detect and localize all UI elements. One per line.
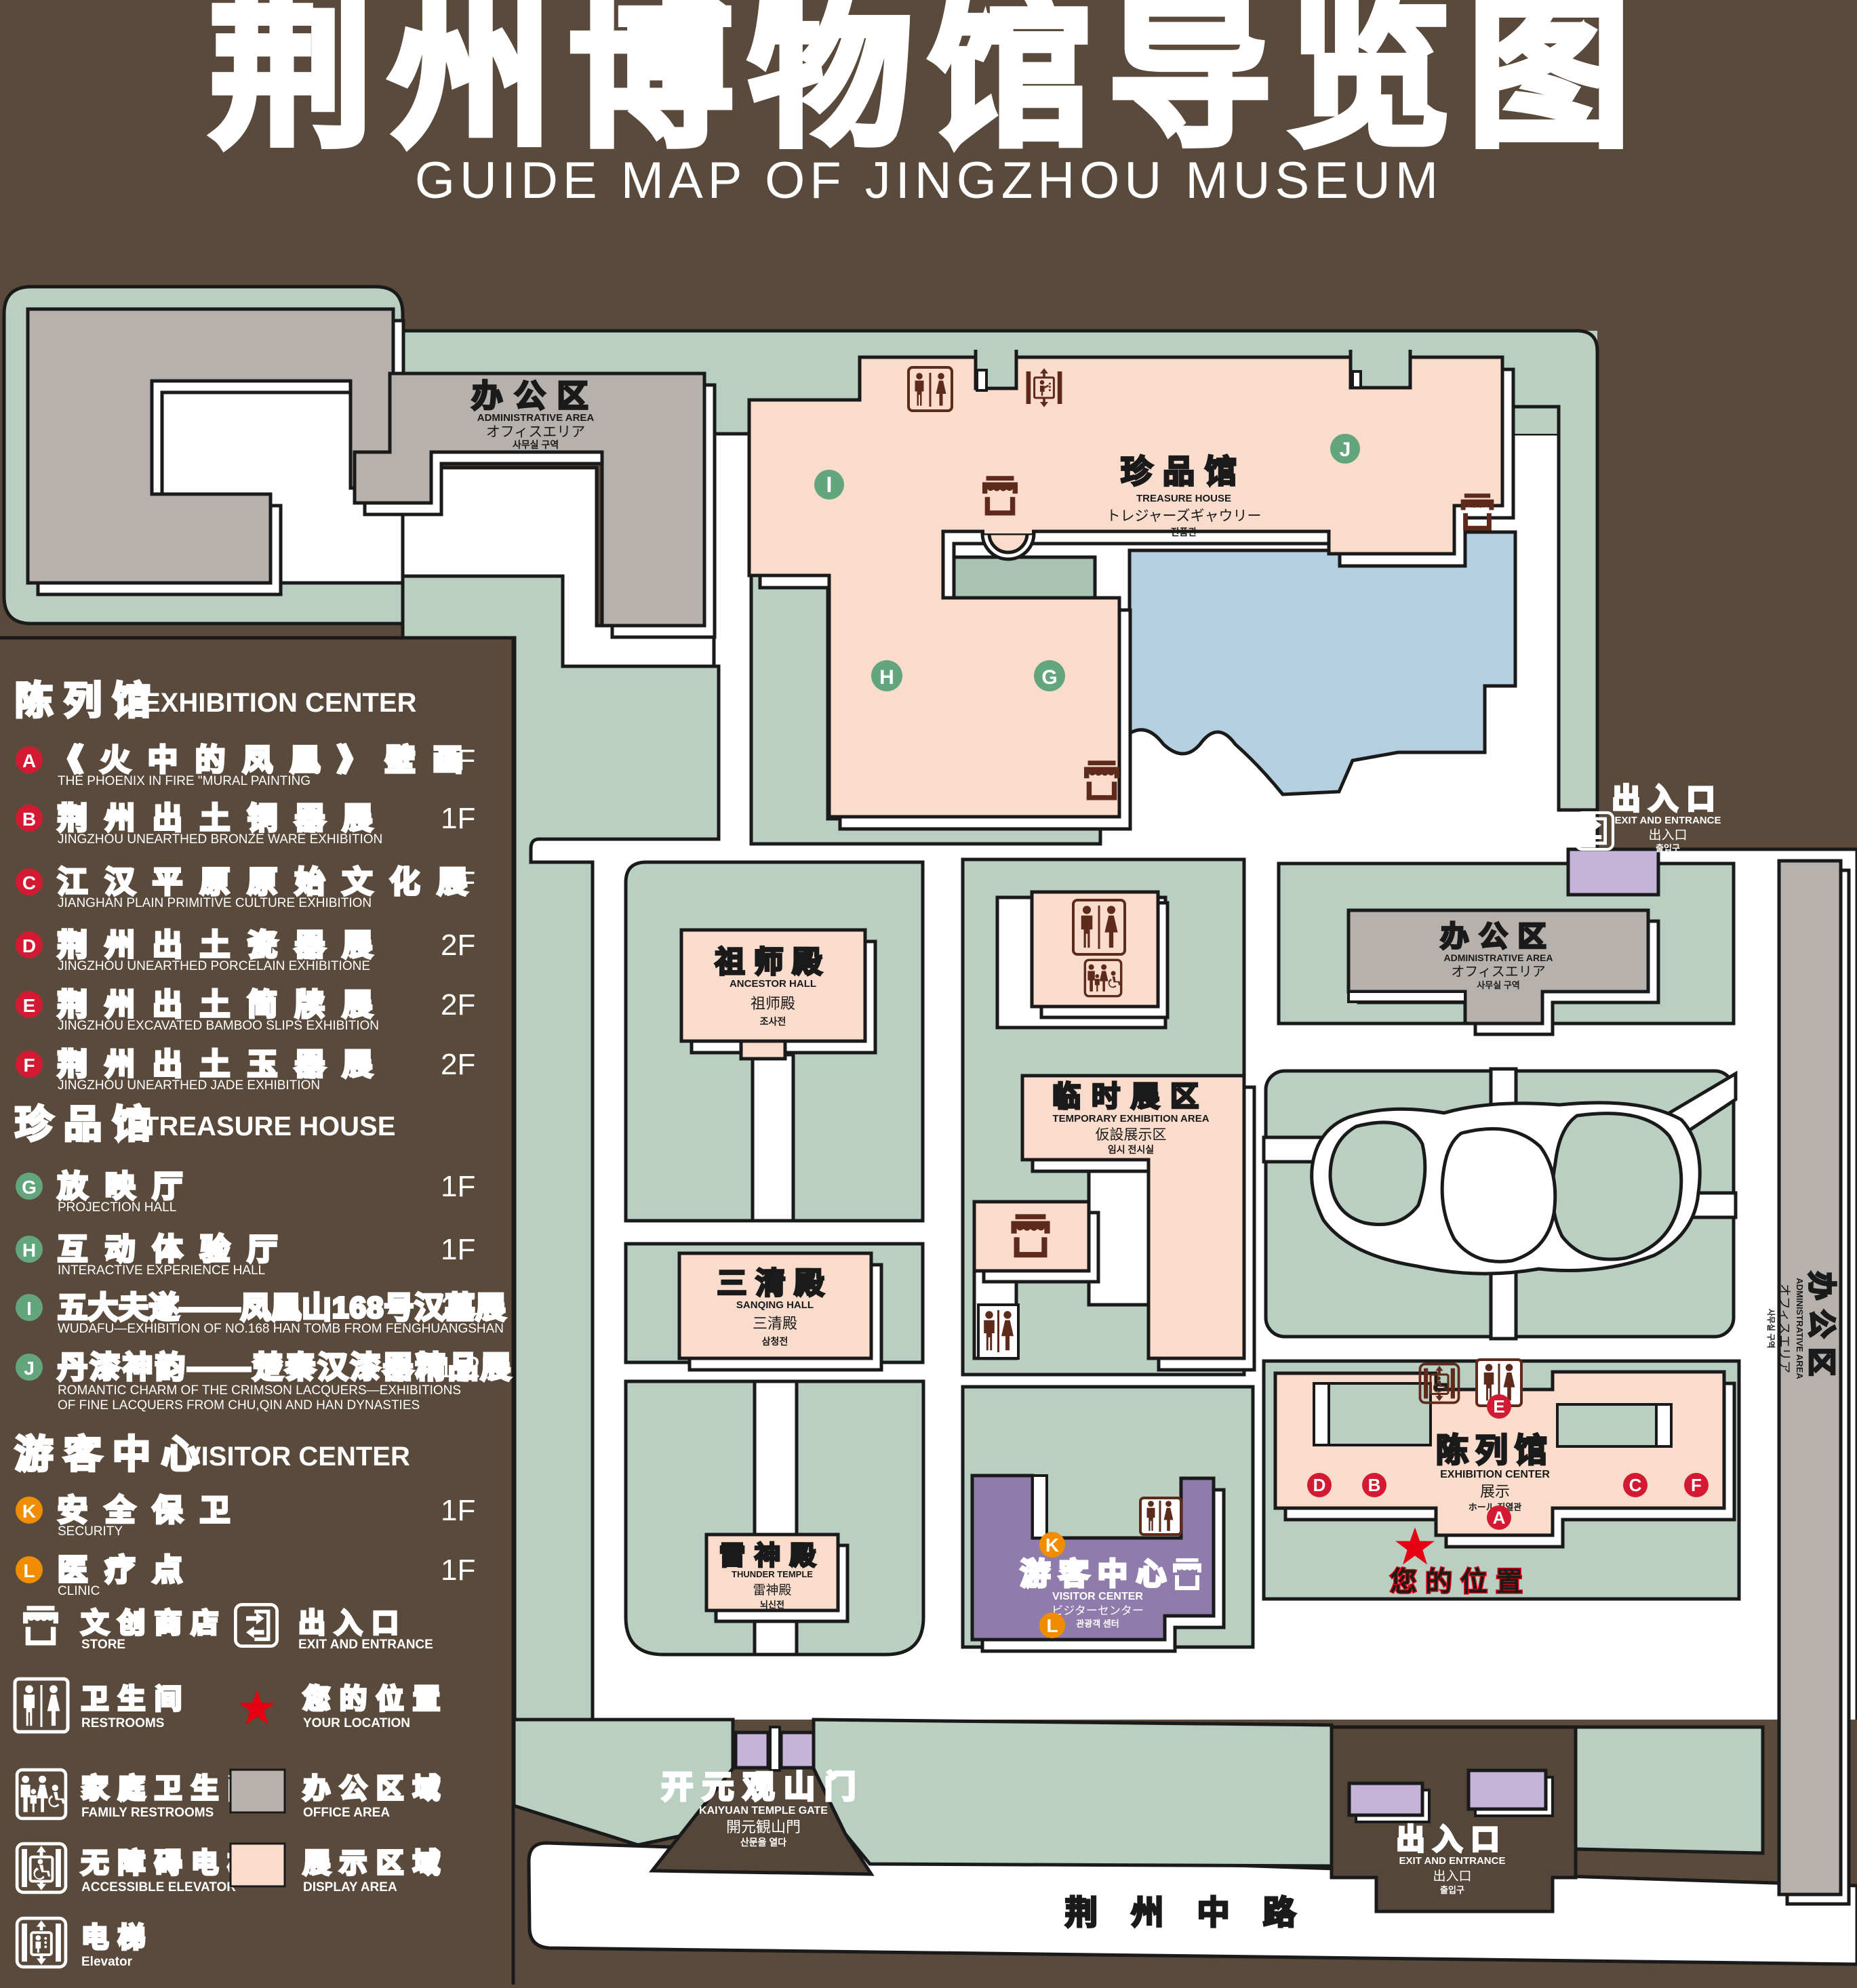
svg-text:三清殿: 三清殿	[753, 1315, 797, 1332]
svg-text:荆 州 中 路: 荆 州 中 路	[1065, 1895, 1308, 1931]
svg-text:1F: 1F	[441, 1554, 475, 1587]
svg-text:TREASURE HOUSE: TREASURE HOUSE	[1136, 493, 1231, 504]
svg-text:办公区: 办公区	[1440, 920, 1556, 952]
svg-text:电梯: 电梯	[81, 1923, 155, 1953]
svg-text:ビジターセンター: ビジターセンター	[1052, 1604, 1144, 1617]
svg-text:江汉平原原始文化展: 江汉平原原始文化展	[58, 866, 485, 899]
svg-text:オフィスエリア: オフィスエリア	[1777, 1284, 1791, 1374]
svg-text:사무실 구역: 사무실 구역	[1766, 1309, 1776, 1349]
svg-text:RESTROOMS: RESTROOMS	[81, 1716, 164, 1730]
svg-text:TEMPORARY EXHIBITION AREA: TEMPORARY EXHIBITION AREA	[1052, 1113, 1209, 1124]
svg-text:陈列馆: 陈列馆	[1436, 1433, 1554, 1469]
svg-text:EXIT AND ENTRANCE: EXIT AND ENTRANCE	[298, 1638, 433, 1652]
svg-text:トレジャーズギャウリー: トレジャーズギャウリー	[1106, 508, 1262, 524]
svg-text:荆州出土玉器展: 荆州出土玉器展	[58, 1048, 390, 1081]
svg-text:2F: 2F	[441, 1048, 475, 1081]
svg-text:ROMANTIC CHARM OF THE CRIMSON: ROMANTIC CHARM OF THE CRIMSON LACQUERS—E…	[58, 1383, 461, 1398]
svg-text:뇌신전: 뇌신전	[760, 1600, 784, 1610]
svg-text:游客中心: 游客中心	[15, 1433, 210, 1476]
svg-text:2F: 2F	[441, 929, 475, 962]
svg-text:ADMINISTRATIVE AREA: ADMINISTRATIVE AREA	[477, 412, 595, 424]
svg-text:ANCESTOR HALL: ANCESTOR HALL	[730, 978, 816, 990]
svg-text:FAMILY RESTROOMS: FAMILY RESTROOMS	[81, 1806, 214, 1820]
svg-text:雷神殿: 雷神殿	[753, 1583, 791, 1598]
svg-text:EXHIBITION CENTER: EXHIBITION CENTER	[142, 688, 417, 718]
svg-text:《火中的凤凰》壁画: 《火中的凤凰》壁画	[53, 744, 480, 777]
svg-text:荆州博物馆导览图: 荆州博物馆导览图	[210, 0, 1648, 165]
svg-text:办公区: 办公区	[472, 378, 600, 413]
svg-text:Elevator: Elevator	[81, 1955, 133, 1969]
svg-text:EXIT AND ENTRANCE: EXIT AND ENTRANCE	[1399, 1855, 1506, 1867]
svg-text:オフィスエリア: オフィスエリア	[1451, 965, 1546, 979]
svg-text:D: D	[22, 935, 36, 956]
svg-text:OFFICE AREA: OFFICE AREA	[303, 1806, 390, 1820]
svg-text:開元観山門: 開元観山門	[726, 1819, 801, 1835]
svg-text:L: L	[1046, 1615, 1058, 1636]
svg-text:진품관: 진품관	[1171, 527, 1197, 537]
svg-text:임시 전시실: 임시 전시실	[1108, 1144, 1154, 1155]
svg-text:オフィスエリア: オフィスエリア	[486, 424, 586, 440]
svg-text:삼청전: 삼청전	[762, 1336, 788, 1347]
svg-text:VISITOR CENTER: VISITOR CENTER	[1052, 1591, 1143, 1602]
svg-text:文创商店: 文创商店	[81, 1608, 228, 1638]
svg-text:JINGZHOU UNEARTHED JADE EXHIBI: JINGZHOU UNEARTHED JADE EXHIBITION	[58, 1078, 320, 1093]
svg-text:PROJECTION HALL: PROJECTION HALL	[58, 1200, 176, 1215]
svg-text:1F: 1F	[441, 1233, 475, 1266]
svg-text:F: F	[23, 1055, 35, 1076]
svg-text:临时展区: 临时展区	[1052, 1080, 1210, 1112]
svg-text:TREASURE HOUSE: TREASURE HOUSE	[142, 1112, 395, 1141]
svg-text:사무실 구역: 사무실 구역	[513, 439, 559, 450]
svg-text:您的位置: 您的位置	[303, 1684, 450, 1714]
svg-text:THUNDER TEMPLE: THUNDER TEMPLE	[732, 1569, 813, 1579]
svg-text:EXIT AND ENTRANCE: EXIT AND ENTRANCE	[1615, 815, 1721, 826]
svg-text:출입구: 출입구	[1656, 843, 1680, 853]
svg-text:YOUR LOCATION: YOUR LOCATION	[303, 1716, 410, 1730]
svg-text:A: A	[1493, 1507, 1506, 1528]
svg-text:雷神殿: 雷神殿	[719, 1542, 825, 1570]
svg-text:B: B	[1368, 1475, 1381, 1495]
svg-text:医疗点: 医疗点	[58, 1554, 200, 1587]
svg-text:J: J	[1340, 439, 1351, 461]
svg-text:出入口: 出入口	[1648, 828, 1687, 843]
svg-text:WUDAFU—EXHIBITION OF NO.168 HA: WUDAFU—EXHIBITION OF NO.168 HAN TOMB FRO…	[58, 1322, 504, 1336]
svg-text:陈列馆: 陈列馆	[15, 679, 161, 722]
svg-text:JINGZHOU UNEARTHED PORCELAIN E: JINGZHOU UNEARTHED PORCELAIN EXHIBITIONE	[58, 959, 370, 973]
svg-text:2F: 2F	[441, 988, 475, 1021]
svg-text:ACCESSIBLE ELEVATOR: ACCESSIBLE ELEVATOR	[81, 1880, 236, 1894]
svg-text:출입구: 출입구	[1440, 1885, 1464, 1895]
svg-text:SECURITY: SECURITY	[58, 1524, 123, 1539]
svg-text:A: A	[22, 750, 36, 771]
svg-text:조사전: 조사전	[760, 1016, 786, 1027]
svg-text:I: I	[26, 1298, 32, 1319]
svg-text:D: D	[1313, 1475, 1326, 1495]
svg-text:五大夫遂——凤凰山168号汉墓展: 五大夫遂——凤凰山168号汉墓展	[58, 1291, 506, 1324]
svg-text:사무실 구역: 사무실 구역	[1477, 980, 1519, 990]
svg-text:H: H	[22, 1240, 36, 1261]
svg-text:ADMINISTRATIVE AREA: ADMINISTRATIVE AREA	[1444, 952, 1553, 963]
svg-text:EXHIBITION CENTER: EXHIBITION CENTER	[1440, 1469, 1550, 1480]
svg-text:游客中心: 游客中心	[1020, 1558, 1175, 1591]
svg-text:H: H	[879, 666, 894, 689]
svg-text:VISITOR CENTER: VISITOR CENTER	[183, 1442, 410, 1472]
svg-text:1F: 1F	[441, 1494, 475, 1527]
svg-text:荆州出土铜器展: 荆州出土铜器展	[58, 802, 390, 835]
svg-text:您的位置: 您的位置	[1390, 1567, 1531, 1597]
svg-text:祖师殿: 祖师殿	[751, 995, 795, 1012]
svg-text:展示区域: 展示区域	[303, 1848, 450, 1878]
svg-text:J: J	[24, 1358, 35, 1379]
svg-text:开元观山门: 开元观山门	[662, 1769, 865, 1804]
svg-text:L: L	[23, 1560, 35, 1581]
svg-text:1-2F: 1-2F	[437, 1351, 498, 1384]
svg-text:CLINIC: CLINIC	[58, 1584, 100, 1598]
svg-text:OF FINE LACQUERS FROM CHU,QIN: OF FINE LACQUERS FROM CHU,QIN AND HAN DY…	[58, 1398, 420, 1413]
svg-text:B: B	[22, 809, 36, 830]
svg-text:GUIDE MAP OF JINGZHOU MUSEUM: GUIDE MAP OF JINGZHOU MUSEUM	[415, 152, 1443, 209]
svg-text:1F: 1F	[441, 1170, 475, 1203]
svg-text:三清殿: 三清殿	[717, 1267, 833, 1300]
svg-text:1F: 1F	[441, 744, 475, 777]
svg-text:办公区域: 办公区域	[303, 1774, 450, 1804]
svg-text:SANQING HALL: SANQING HALL	[736, 1299, 814, 1311]
svg-text:산문을 열다: 산문을 열다	[740, 1837, 786, 1848]
svg-text:互动体验厅: 互动体验厅	[58, 1233, 295, 1266]
svg-text:DISPLAY AREA: DISPLAY AREA	[303, 1880, 397, 1894]
svg-text:관광객 센터: 관광객 센터	[1076, 1619, 1119, 1629]
svg-text:G: G	[1041, 666, 1057, 689]
svg-text:I: I	[826, 472, 833, 497]
svg-text:荆州出土瓷器展: 荆州出土瓷器展	[58, 929, 390, 962]
svg-text:JINGZHOU UNEARTHED BRONZE WARE: JINGZHOU UNEARTHED BRONZE WARE EXHIBITIO…	[58, 832, 382, 847]
svg-text:ADMINISTRATIVE AREA: ADMINISTRATIVE AREA	[1795, 1278, 1805, 1379]
svg-text:E: E	[23, 995, 36, 1016]
svg-text:JINGZHOU EXCAVATED BAMBOO SLIP: JINGZHOU EXCAVATED BAMBOO SLIPS EXHIBITI…	[58, 1019, 379, 1033]
svg-text:展示: 展示	[1480, 1483, 1510, 1500]
svg-text:出入口: 出入口	[1396, 1823, 1508, 1855]
svg-text:C: C	[22, 872, 36, 893]
svg-text:1F: 1F	[441, 802, 475, 835]
svg-text:祖师殿: 祖师殿	[715, 946, 831, 979]
svg-text:K: K	[1045, 1535, 1059, 1556]
svg-text:珍品馆: 珍品馆	[15, 1103, 161, 1145]
svg-text:出入口: 出入口	[1612, 783, 1723, 815]
svg-text:卫生间: 卫生间	[81, 1684, 191, 1714]
svg-text:办公区: 办公区	[1805, 1272, 1837, 1385]
svg-text:2F: 2F	[441, 1291, 475, 1324]
svg-text:仮設展示区: 仮設展示区	[1096, 1127, 1167, 1143]
svg-text:珍品馆: 珍品馆	[1121, 453, 1247, 489]
svg-text:THE PHOENIX IN FIRE "MURAL PAI: THE PHOENIX IN FIRE "MURAL PAINTING	[58, 774, 311, 788]
svg-text:G: G	[22, 1177, 37, 1198]
svg-text:1F: 1F	[441, 866, 475, 899]
svg-text:C: C	[1629, 1475, 1642, 1495]
svg-text:STORE: STORE	[81, 1638, 125, 1652]
svg-text:KAIYUAN TEMPLE GATE: KAIYUAN TEMPLE GATE	[699, 1805, 828, 1817]
svg-text:JIANGHAN PLAIN PRIMITIVE CULTU: JIANGHAN PLAIN PRIMITIVE CULTURE EXHIBIT…	[58, 896, 372, 910]
svg-text:E: E	[1493, 1396, 1504, 1417]
svg-text:安全保卫: 安全保卫	[58, 1493, 247, 1527]
svg-text:K: K	[22, 1501, 36, 1522]
svg-text:出入口: 出入口	[298, 1608, 408, 1638]
svg-text:INTERACTIVE EXPERIENCE HALL: INTERACTIVE EXPERIENCE HALL	[58, 1263, 265, 1278]
svg-text:放映厅: 放映厅	[58, 1170, 200, 1203]
svg-text:荆州出土简牍展: 荆州出土简牍展	[58, 988, 390, 1021]
svg-text:F: F	[1691, 1475, 1702, 1495]
svg-text:出入口: 出入口	[1433, 1869, 1471, 1884]
